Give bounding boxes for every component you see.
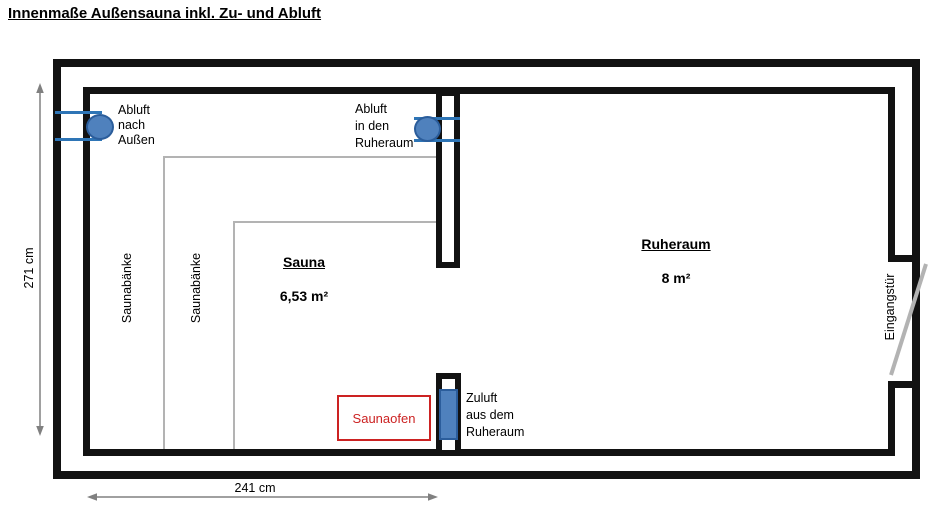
abluft-aussen-vent-icon	[86, 114, 114, 140]
arrowhead-up-icon	[36, 83, 44, 93]
saunabaenke-label-1: Saunabänke	[117, 238, 137, 338]
ruheraum-room-name: Ruheraum	[626, 236, 726, 252]
abluft-ruheraum-label: Abluft in den Ruheraum	[355, 101, 413, 152]
zuluft-vent-icon	[439, 389, 458, 440]
dimension-horizontal-label: 241 cm	[205, 481, 305, 495]
eingangstuer-label: Eingangstür	[880, 257, 900, 357]
dimension-vertical-label: 271 cm	[19, 218, 39, 318]
page-title: Innenmaße Außensauna inkl. Zu- und Abluf…	[8, 5, 321, 22]
saunaofen-label: Saunaofen	[353, 411, 416, 426]
sauna-room-name: Sauna	[254, 254, 354, 270]
arrowhead-down-icon	[36, 426, 44, 436]
arrowhead-left-icon	[87, 493, 97, 501]
abluft-aussen-label: Abluft nach Außen	[118, 103, 155, 148]
abluft-aussen-duct-line-top	[55, 111, 102, 114]
sauna-room-area: 6,53 m²	[254, 288, 354, 304]
ruheraum-room-area: 8 m²	[626, 270, 726, 286]
abluft-ruheraum-vent-icon	[414, 116, 441, 142]
zuluft-ruheraum-label: Zuluft aus dem Ruheraum	[466, 390, 524, 441]
arrowhead-right-icon	[428, 493, 438, 501]
saunaofen-box: Saunaofen	[337, 395, 431, 441]
floor-plan-canvas: Innenmaße Außensauna inkl. Zu- und Abluf…	[0, 0, 942, 509]
saunabaenke-label-2: Saunabänke	[186, 238, 206, 338]
